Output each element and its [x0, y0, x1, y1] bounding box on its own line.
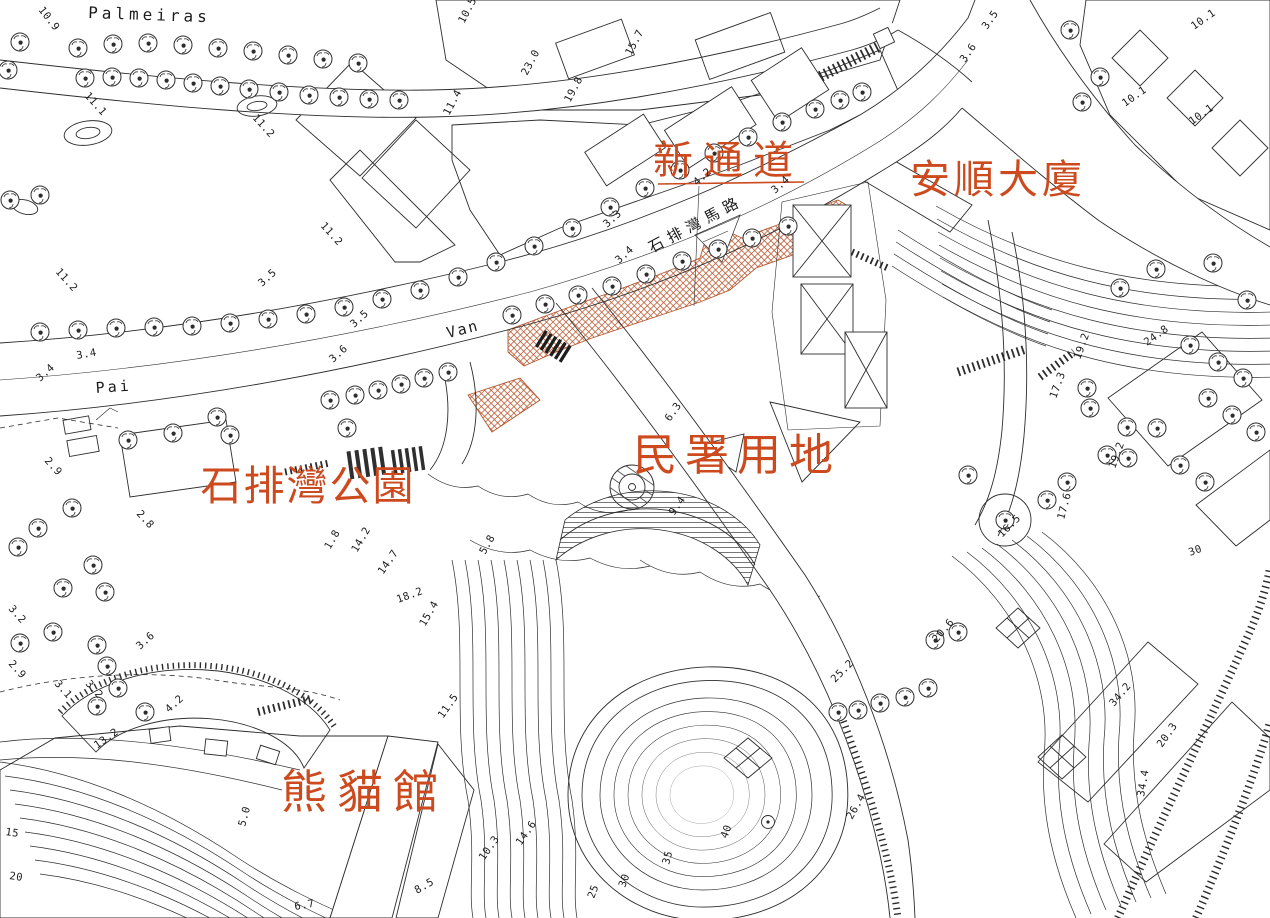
- tree-symbol: [314, 50, 332, 68]
- tree-symbol: [636, 179, 654, 197]
- tree-symbol: [145, 318, 163, 336]
- tree-symbol: [1223, 406, 1241, 424]
- tree-symbol: [9, 538, 27, 556]
- tree-symbol: [487, 253, 505, 271]
- tree-symbol: [569, 286, 587, 304]
- tree-symbol: [221, 426, 239, 444]
- tree-symbol: [503, 306, 521, 324]
- tree-symbol: [369, 381, 387, 399]
- label-panda-pavilion: 熊貓館: [281, 765, 449, 819]
- tree-symbol: [1091, 68, 1109, 86]
- tree-symbol: [69, 39, 87, 57]
- tree-symbol: [104, 35, 122, 53]
- tree-symbol: [11, 634, 29, 652]
- tree-symbol: [211, 77, 229, 95]
- tree-symbol: [349, 54, 367, 72]
- tree-symbol: [1199, 389, 1217, 407]
- tree-symbol: [164, 424, 182, 442]
- tree-symbol: [96, 583, 114, 601]
- tree-symbol: [439, 363, 457, 381]
- tree-symbol: [563, 219, 581, 237]
- tree-symbol: [831, 91, 849, 109]
- label-pai: Pai: [95, 377, 132, 397]
- tree-symbol: [209, 39, 227, 57]
- tree-symbol: [373, 290, 391, 308]
- tree-symbol: [300, 86, 318, 104]
- tree-symbol: [806, 100, 824, 118]
- tree-symbol: [29, 519, 47, 537]
- site-plan-map: 新通道安順大廈民署用地石排灣公園熊貓館PalmeirasVanPai石排灣馬路1…: [0, 0, 1270, 918]
- tree-symbol: [390, 91, 408, 109]
- tree-symbol: [1234, 369, 1252, 387]
- tree-symbol: [637, 265, 655, 283]
- tree-symbol: [415, 369, 433, 387]
- tree-symbol: [109, 679, 127, 697]
- tree-symbol: [330, 88, 348, 106]
- tree-symbol: [1238, 291, 1256, 309]
- tree-symbol: [603, 277, 621, 295]
- tree-symbol: [335, 298, 353, 316]
- tree-symbol: [392, 375, 410, 393]
- tree-symbol: [411, 281, 429, 299]
- tree-symbol: [1148, 419, 1166, 437]
- tree-symbol: [525, 237, 543, 255]
- tree-symbol: [103, 68, 121, 86]
- tree-symbol: [360, 90, 378, 108]
- tree-symbol: [321, 391, 339, 409]
- tree-symbol: [853, 83, 871, 101]
- tree-symbol: [1078, 379, 1096, 397]
- tree-symbol: [259, 310, 277, 328]
- tree-symbol: [743, 229, 761, 247]
- tree-symbol: [44, 623, 62, 641]
- tree-symbol: [338, 419, 356, 437]
- tree-symbol: [1209, 353, 1227, 371]
- spot-elevation: 15: [5, 826, 20, 840]
- tree-symbol: [98, 657, 116, 675]
- label-civic-bureau-land: 民署用地: [633, 430, 841, 481]
- tree-symbol: [1, 191, 19, 209]
- tree-symbol: [829, 703, 847, 721]
- tree-symbol: [779, 217, 797, 235]
- tree-symbol: [221, 314, 239, 332]
- tree-symbol: [896, 688, 914, 706]
- tree-symbol: [919, 679, 937, 697]
- tree-symbol: [183, 317, 201, 335]
- tree-symbol: [69, 321, 87, 339]
- tree-symbol: [279, 46, 297, 64]
- tree-symbol: [1073, 93, 1091, 111]
- tree-symbol: [136, 703, 154, 721]
- tree-symbol: [1058, 473, 1076, 491]
- tree-symbol: [871, 694, 889, 712]
- tree-symbol: [63, 499, 81, 517]
- tree-symbol: [119, 431, 137, 449]
- tree-symbol: [88, 636, 106, 654]
- tree-symbol: [130, 69, 148, 87]
- tree-symbol: [849, 701, 867, 719]
- tree-symbol: [959, 466, 977, 484]
- tree-symbol: [208, 408, 226, 426]
- tree-symbol: [31, 323, 49, 341]
- tree-symbol: [270, 83, 288, 101]
- label-seac-pai-van-park: 石排灣公園: [201, 462, 416, 510]
- tree-symbol: [773, 113, 791, 131]
- tree-symbol: [54, 579, 72, 597]
- spot-elevation: 20: [9, 870, 24, 884]
- tree-symbol: [1061, 21, 1079, 39]
- tree-symbol: [1118, 418, 1136, 436]
- tree-symbol: [1204, 254, 1222, 272]
- tree-symbol: [449, 268, 467, 286]
- tree-symbol: [31, 186, 49, 204]
- tree-symbol: [244, 42, 262, 60]
- tree-symbol: [1196, 473, 1214, 491]
- tree-symbol: [84, 556, 102, 574]
- tree-symbol: [139, 34, 157, 52]
- tree-symbol: [157, 71, 175, 89]
- tree-symbol: [76, 69, 94, 87]
- tree-symbol: [0, 61, 17, 79]
- tree-symbol: [1081, 399, 1099, 417]
- tree-symbol: [1181, 336, 1199, 354]
- tree-symbol: [11, 33, 29, 51]
- label-on-son-building: 安順大廈: [910, 157, 1086, 203]
- tree-symbol: [297, 305, 315, 323]
- tree-symbol: [1247, 423, 1265, 441]
- tree-symbol: [184, 74, 202, 92]
- tree-symbol: [174, 36, 192, 54]
- tree-symbol: [1111, 279, 1129, 297]
- tree-symbol: [1038, 491, 1056, 509]
- tree-symbol: [240, 80, 258, 98]
- tree-symbol: [346, 386, 364, 404]
- tree-symbol: [536, 295, 554, 313]
- tree-symbol: [709, 240, 727, 258]
- tree-symbol: [1171, 456, 1189, 474]
- tree-symbol: [673, 252, 691, 270]
- tree-symbol: [1147, 260, 1165, 278]
- tree-symbol: [107, 319, 125, 337]
- site-plan: 新通道安順大廈民署用地石排灣公園熊貓館PalmeirasVanPai石排灣馬路1…: [0, 0, 1270, 918]
